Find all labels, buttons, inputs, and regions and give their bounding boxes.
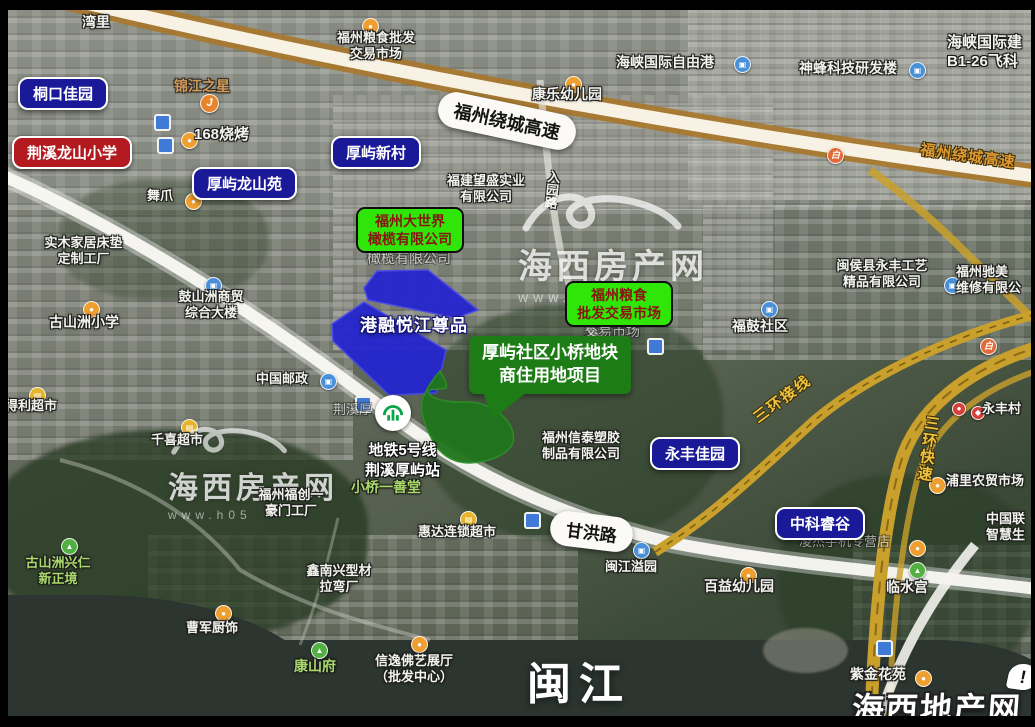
poi-glyph: ●: [957, 405, 962, 413]
poi-glyph: ▤: [465, 516, 473, 524]
poi-glyph: ▲: [316, 647, 324, 655]
poi-glyph: ▣: [739, 61, 747, 69]
map-label-fugu-community: 福鼓社区: [732, 318, 788, 336]
toll-gate-icon: 白: [980, 338, 997, 355]
label-line: 制品有限公司: [533, 446, 629, 462]
project-callout[interactable]: 厚屿社区小桥地块 商住用地项目: [469, 336, 631, 394]
map-label-xinyi-gallery: 信逸佛艺展厅 （批发中心）: [364, 653, 464, 686]
poi-glyph: ▣: [638, 547, 646, 555]
map-label-qianxi-supermarket: 千喜超市: [151, 432, 203, 448]
label-line: （批发中心）: [364, 669, 464, 685]
poi-glyph: ●: [191, 198, 196, 206]
map-label-yongfengcun: 永丰村: [982, 401, 1021, 417]
blue-parcel-title: 港融悦江尊品: [360, 311, 468, 336]
map-label-huida-supermarket: 惠达连锁超市: [418, 524, 496, 540]
metro-station-name: 荆溪厚屿站: [350, 461, 455, 481]
map-label-deli-supermarket: 洲得利超市: [0, 398, 57, 414]
map-label-linshuigong: 临水宫: [886, 579, 928, 597]
map-label-gushanzhou-school: 古山洲小学: [49, 314, 119, 332]
metro-station-label: 地铁5号线 荆溪厚屿站: [350, 441, 455, 482]
jinjiang-inn-logo-icon: J: [200, 94, 219, 113]
toll-gate-icon: 白: [827, 147, 844, 164]
annotation-liangshi-market[interactable]: 福州粮食 批发交易市场: [565, 281, 673, 327]
poi-glyph: ●: [921, 675, 926, 683]
poi-glyph: ●: [221, 610, 226, 618]
poi-glyph: ▣: [325, 378, 333, 386]
garden-poi-icon: ▣: [633, 542, 650, 559]
pill-houyulongshanyuan[interactable]: 厚屿龙山苑: [192, 167, 297, 200]
label-line: 福州福创一: [248, 487, 334, 503]
metro-logo: [380, 400, 406, 426]
road-shield-icon: [524, 512, 541, 529]
frame-bar-right: [1031, 0, 1035, 727]
post-poi-icon: ▣: [320, 373, 337, 390]
label-line: 海峡国际建: [947, 34, 1022, 53]
map-label-168bbq: 168烧烤: [194, 126, 249, 145]
map-label-wuzhua: 舞爪: [147, 188, 173, 204]
kangshanfu-poi-icon: ▲: [311, 642, 328, 659]
label-line: 实木家居床垫: [35, 235, 132, 251]
metro-station-icon[interactable]: [375, 395, 411, 431]
label-line: 福建望盛实业: [438, 173, 534, 189]
annotation-line: 福州大世界: [368, 212, 452, 230]
label-line: 维修有限公: [956, 280, 1035, 296]
label-line: 闽侯县永丰工艺: [826, 258, 938, 274]
annotation-line: 批发交易市场: [577, 304, 661, 322]
label-line: 交易市场: [330, 46, 422, 62]
map-label-jingxi-bg: 荆溪厚: [333, 402, 372, 418]
map-label-haixia-b126: 海峡国际建 B1-26飞科: [947, 34, 1022, 72]
map-label-china-post: 中国邮政: [256, 371, 308, 387]
metro-line-name: 地铁5号线: [350, 441, 455, 461]
tech-poi-icon: ▣: [909, 62, 926, 79]
road-shield-icon: [154, 114, 171, 131]
pill-zhongkeruigu[interactable]: 中科睿谷: [775, 507, 865, 540]
label-line: 新正境: [18, 571, 98, 587]
map-label-minhou-crafts: 闽侯县永丰工艺 精品有限公司: [826, 258, 938, 291]
map-label-chimei-repair: 福州驰美 维修有限公: [956, 264, 1035, 297]
pill-tongkoujiayuan[interactable]: 桐口佳园: [18, 77, 108, 110]
poi-glyph: ●: [417, 641, 422, 649]
minjiang-river-label: 闽江: [527, 648, 631, 712]
map-label-liangshi-north: 福州粮食批发 交易市场: [330, 30, 422, 63]
poi-glyph: ●: [935, 482, 940, 490]
port-poi-icon: ▣: [734, 56, 751, 73]
map-label-jinjiang-inn: 锦江之星: [174, 78, 230, 96]
map-label-zijinhuayuan: 紫金花苑: [850, 666, 906, 684]
label-line: 精品有限公司: [826, 274, 938, 290]
map-label-wanli: 湾里: [82, 14, 110, 32]
poi-glyph: ▣: [766, 306, 774, 314]
map-label-shenfeng: 神蜂科技研发楼: [799, 60, 897, 78]
linshuigong-poi-icon: ▲: [909, 562, 926, 579]
poi-glyph: ●: [915, 545, 920, 553]
frame-bar-bottom: [0, 716, 1035, 727]
label-line: 福州驰美: [956, 264, 1035, 280]
map-label-xiaoqiao-hall: 小桥一善堂: [351, 479, 421, 497]
label-line: 有限公司: [438, 189, 534, 205]
temple-poi-icon: ▲: [61, 538, 78, 555]
map-label-kangshanfu: 康山府: [294, 658, 336, 676]
poi-glyph: ●: [89, 306, 94, 314]
map-label-xintai-plastics: 福州信泰塑胶 制品有限公司: [533, 430, 629, 463]
label-line: 鑫南兴型材: [296, 563, 382, 579]
annotation-dashijie[interactable]: 福州大世界 橄榄有限公司: [356, 207, 464, 253]
pill-yongfengjiayuan[interactable]: 永丰佳园: [650, 437, 740, 470]
road-shield-icon: [647, 338, 664, 355]
label-line: 中国联: [986, 511, 1035, 527]
frame-bar-top: [0, 0, 1035, 10]
watermark-swirl-icon: [518, 186, 683, 234]
pill-houyuxincun[interactable]: 厚屿新村: [331, 136, 421, 169]
poi-glyph: 白: [984, 342, 993, 351]
annotation-line: 橄榄有限公司: [368, 230, 452, 248]
label-line: 福州粮食批发: [330, 30, 422, 46]
frame-bar-left: [0, 0, 8, 727]
map-label-minjiangyiyuan: 闽江溢园: [605, 559, 657, 575]
pill-jingxilongshan-school[interactable]: 荆溪龙山小学: [12, 136, 132, 169]
poi-glyph: ▲: [66, 543, 74, 551]
label-line: 鼓山洲商贸: [170, 289, 252, 305]
map-label-wangsheng: 福建望盛实业 有限公司: [438, 173, 534, 206]
label-line: 古山洲兴仁: [18, 555, 98, 571]
label-line: 定制工厂: [35, 251, 132, 267]
map-label-puli-market: 浦里农贸市场: [946, 473, 1024, 489]
map-screenshot: 海西房产网 www.h0591 海西房产网 www.h05 福州绕城高速 福州绕…: [0, 0, 1035, 727]
xinyi-poi-icon: ●: [411, 636, 428, 653]
poi-glyph: ▣: [914, 67, 922, 75]
label-line: 豪门工厂: [248, 503, 334, 519]
road-shield-icon: [876, 640, 893, 657]
poi-glyph: ◆: [975, 409, 981, 417]
label-line: 福州信泰塑胶: [533, 430, 629, 446]
expressway-ramp-northeast: [870, 170, 1035, 330]
map-label-kangle-kindergarten: 康乐幼儿园: [532, 86, 602, 104]
road-shield-icon: [157, 137, 174, 154]
label-line: B1-26飞科: [947, 53, 1022, 72]
callout-line: 商住用地项目: [482, 365, 618, 388]
label-line: 智慧生: [986, 527, 1035, 543]
map-label-free-port: 海峡国际自由港: [616, 54, 714, 72]
map-label-gushanzhou-mall: 鼓山洲商贸 综合大楼: [170, 289, 252, 322]
callout-line: 厚屿社区小桥地块: [482, 342, 618, 365]
map-label-fuchuang-factory: 福州福创一 豪门工厂: [248, 487, 334, 520]
annotation-line: 福州粮食: [577, 286, 661, 304]
poi-glyph: 白: [831, 151, 840, 160]
map-label-shimu-factory: 实木家居床垫 定制工厂: [35, 235, 132, 268]
map-label-xinzhengjing: 古山洲兴仁 新正境: [18, 555, 98, 588]
village-poi-icon: ●: [952, 402, 966, 416]
map-label-caojun: 曹军厨饰: [186, 620, 238, 636]
map-label-zhongguo-cut: 中国联 智慧生: [986, 511, 1035, 544]
community-poi-icon: ▣: [761, 301, 778, 318]
poi-glyph: ●: [187, 137, 192, 145]
map-label-baiyi-kindergarten: 百益幼儿园: [704, 578, 774, 596]
lingjie-poi-icon: ●: [909, 540, 926, 557]
label-line: 拉弯厂: [296, 579, 382, 595]
poi-glyph: J: [206, 98, 212, 109]
poi-glyph: ▲: [914, 567, 922, 575]
label-line: 信逸佛艺展厅: [364, 653, 464, 669]
map-label-xinnan-factory: 鑫南兴型材 拉弯厂: [296, 563, 382, 596]
label-line: 综合大楼: [170, 305, 252, 321]
